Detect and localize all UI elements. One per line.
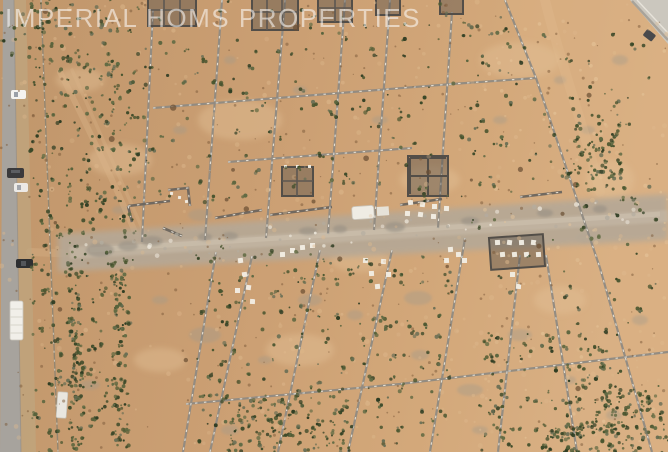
white-bus: [10, 301, 23, 340]
white-trailer: [56, 392, 68, 419]
foundation-grid-7: [408, 156, 448, 196]
white-car-south: [14, 183, 28, 192]
watermark-text: IMPERIAL HOMS PROPERTIES: [5, 3, 421, 34]
dark-suv: [7, 168, 24, 178]
foundation-grid-6: [282, 167, 313, 196]
terrain-svg: [0, 0, 668, 452]
aerial-photo: IMPERIAL HOMS PROPERTIES: [0, 0, 668, 452]
foundation-pad-slab: [489, 234, 545, 270]
